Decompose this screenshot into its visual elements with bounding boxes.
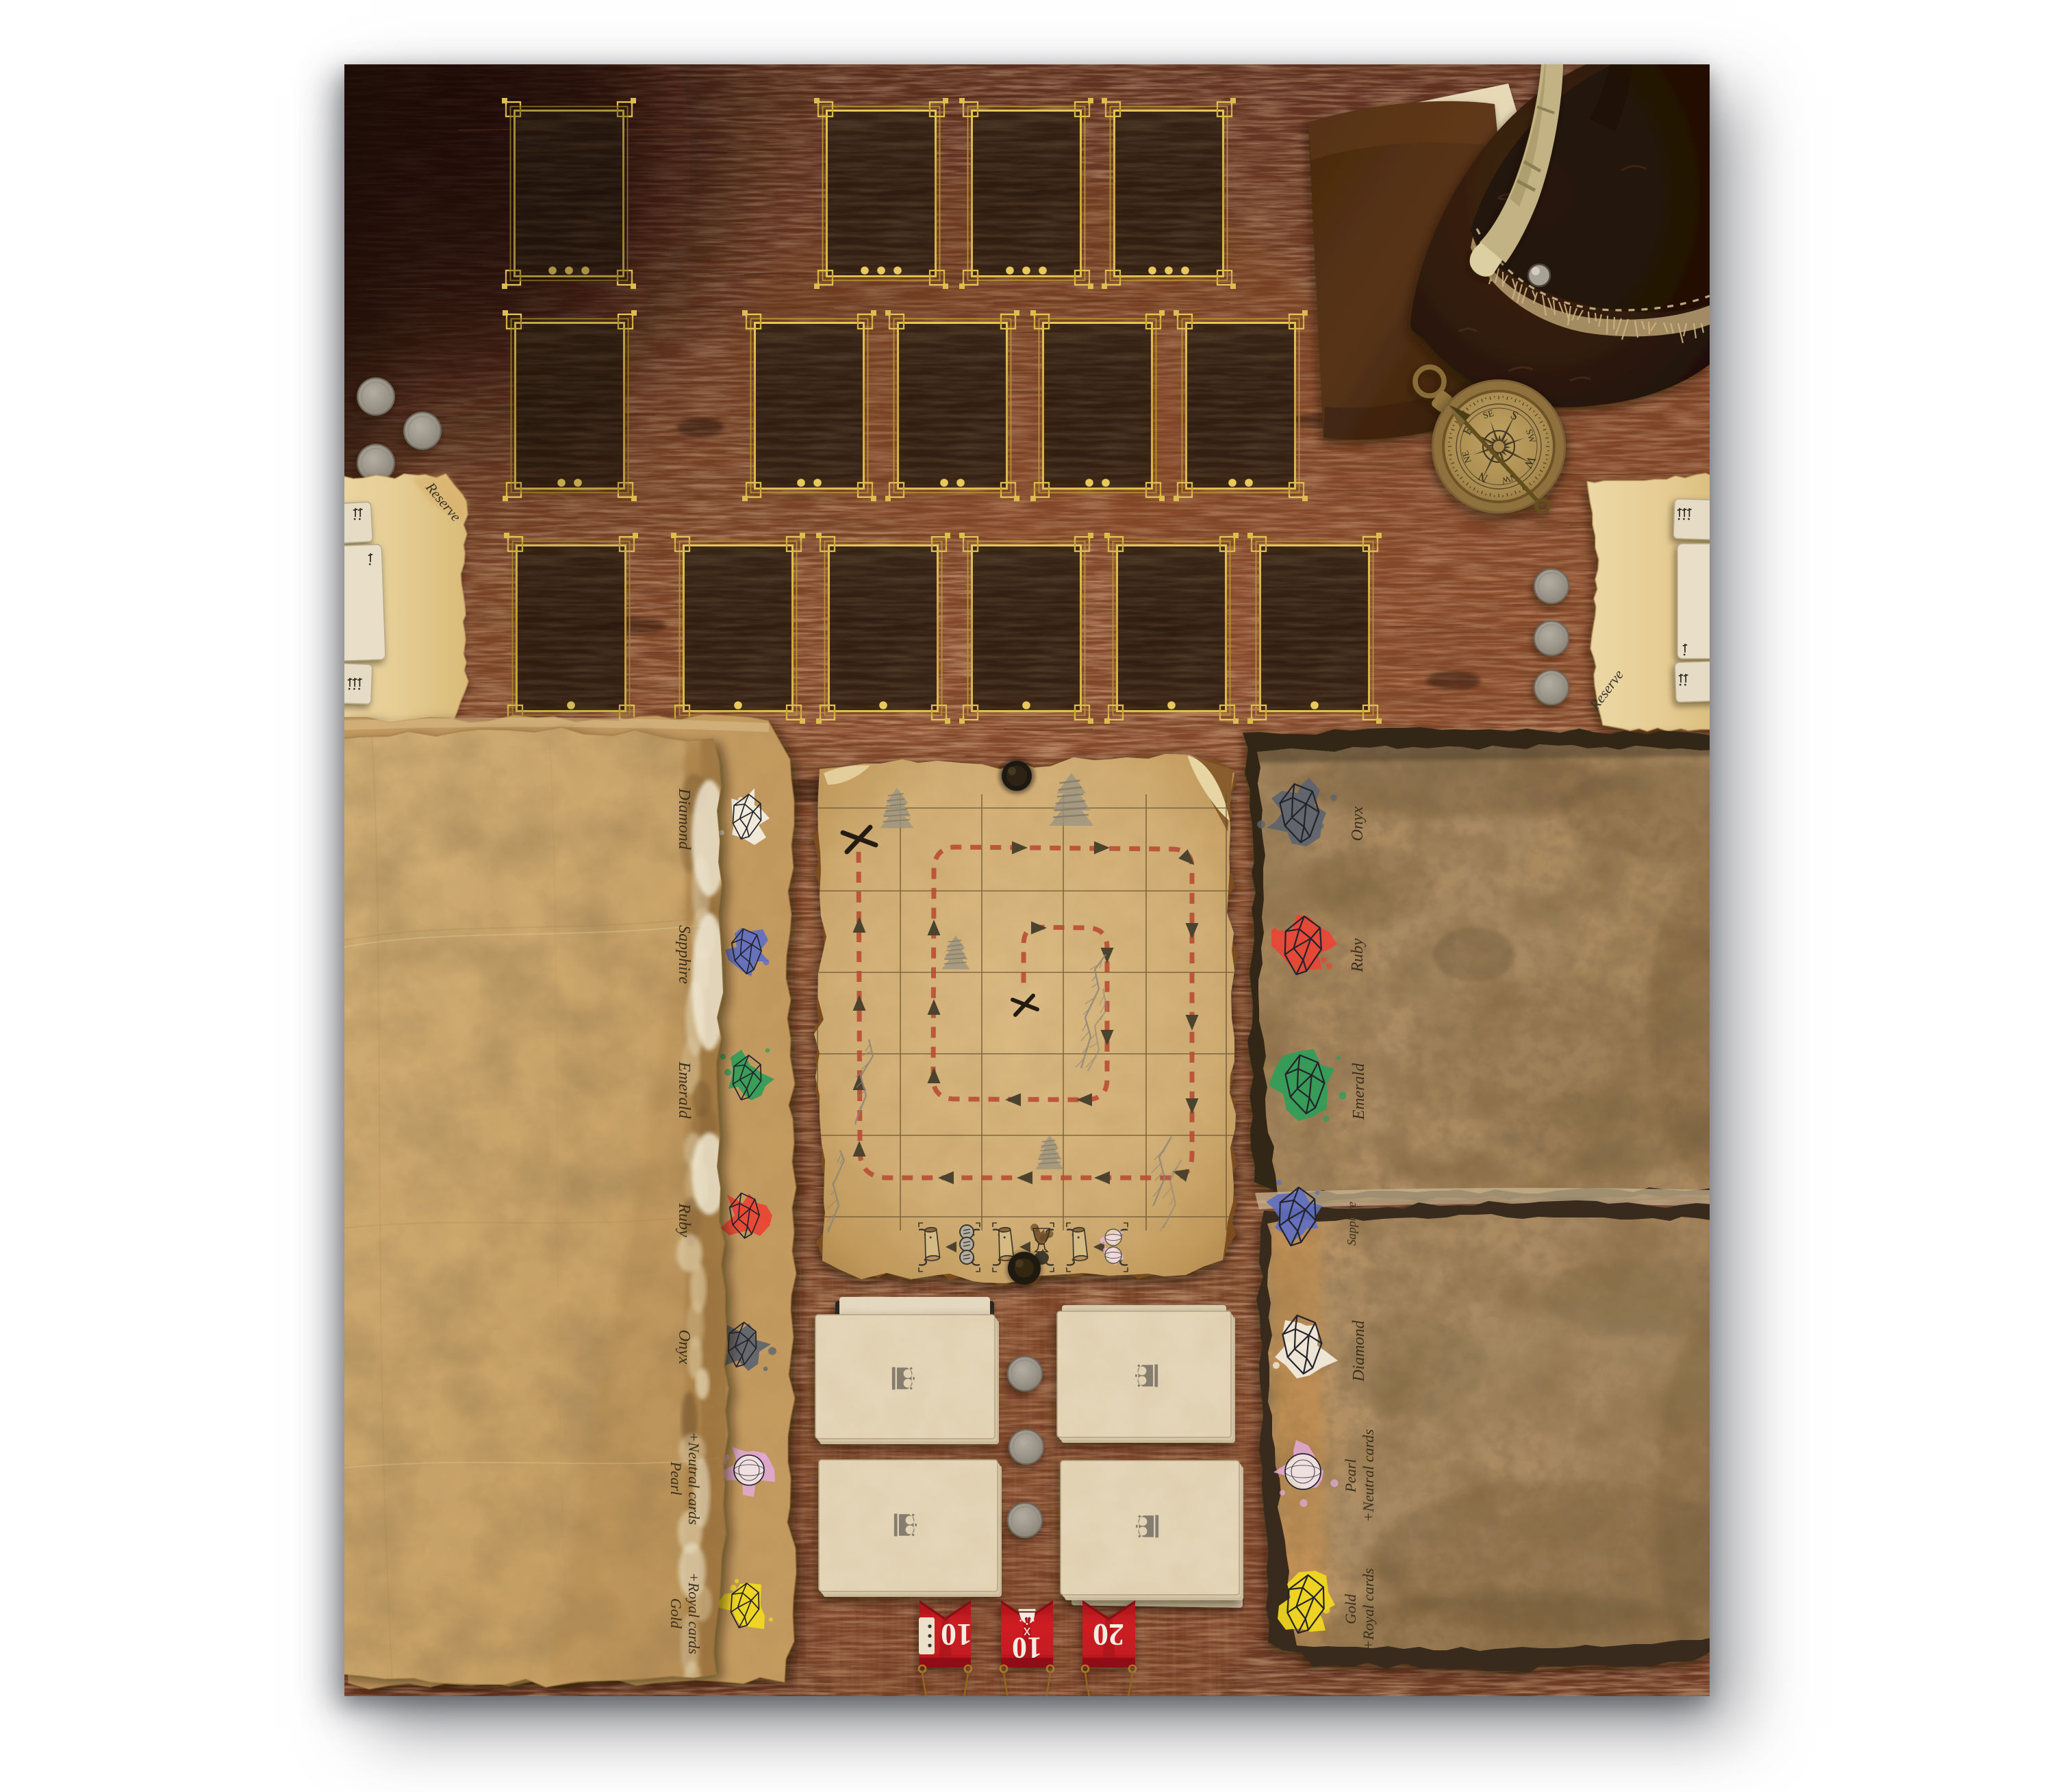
svg-text:Diamond: Diamond — [675, 787, 693, 850]
svg-text:Ruby: Ruby — [675, 1202, 693, 1237]
svg-text:Sapphire: Sapphire — [675, 925, 693, 984]
svg-text:Sapphire: Sapphire — [1345, 1202, 1358, 1246]
svg-text:Onyx: Onyx — [1349, 806, 1367, 841]
svg-text:+Royal cards: +Royal cards — [1360, 1568, 1377, 1650]
svg-text:x: x — [1024, 1624, 1030, 1639]
svg-text:Onyx: Onyx — [675, 1330, 693, 1365]
svg-text:Emerald: Emerald — [675, 1061, 693, 1120]
svg-text:20: 20 — [1093, 1617, 1124, 1652]
svg-text:+Royal cards: +Royal cards — [685, 1572, 702, 1654]
svg-text:Ruby: Ruby — [1349, 938, 1367, 973]
svg-text:Diamond: Diamond — [1350, 1320, 1368, 1382]
svg-text:+Neutral cards: +Neutral cards — [685, 1432, 702, 1525]
svg-text:Gold: Gold — [1342, 1593, 1359, 1624]
svg-text:10: 10 — [941, 1617, 972, 1652]
svg-text:Emerald: Emerald — [1350, 1063, 1368, 1121]
svg-text:Pearl: Pearl — [668, 1461, 685, 1496]
svg-text:+Neutral cards: +Neutral cards — [1360, 1429, 1377, 1522]
svg-text:Pearl: Pearl — [1342, 1459, 1359, 1493]
svg-text:Gold: Gold — [668, 1598, 685, 1629]
